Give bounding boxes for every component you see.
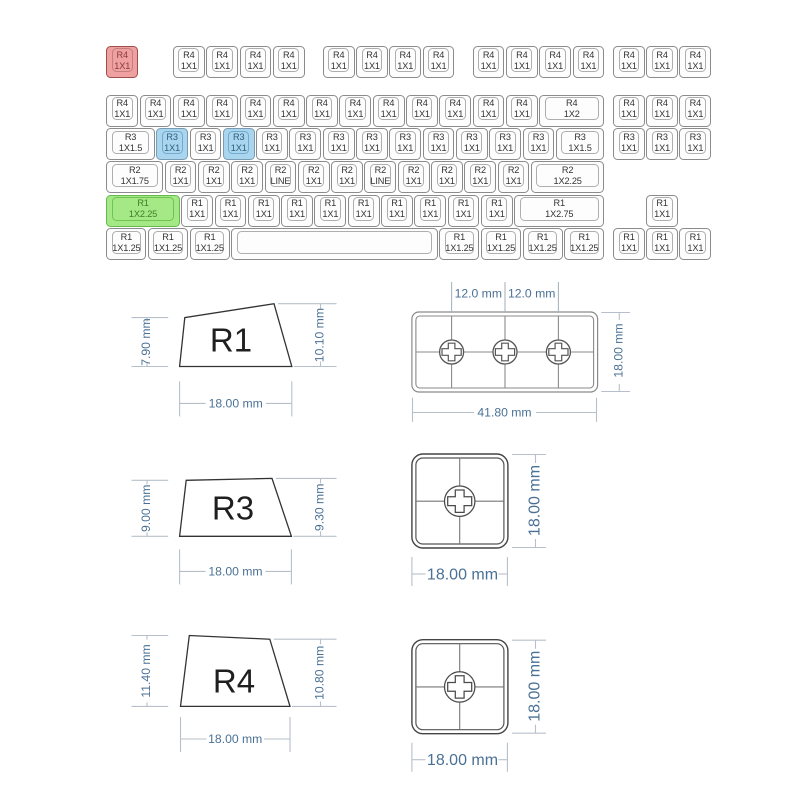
svg-text:18.00 mm: 18.00 mm [527, 651, 544, 722]
svg-text:10.80 mm: 10.80 mm [313, 646, 327, 700]
svg-text:18.00 mm: 18.00 mm [208, 565, 262, 579]
svg-text:9.30 mm: 9.30 mm [313, 484, 327, 531]
svg-text:R4: R4 [213, 663, 255, 700]
svg-text:18.00 mm: 18.00 mm [209, 397, 263, 411]
svg-text:18.00 mm: 18.00 mm [527, 465, 544, 536]
svg-text:41.80 mm: 41.80 mm [477, 406, 531, 420]
svg-text:10.10 mm: 10.10 mm [313, 308, 327, 362]
svg-text:12.0 mm: 12.0 mm [455, 287, 502, 301]
svg-text:18.00 mm: 18.00 mm [612, 323, 626, 377]
svg-text:7.90 mm: 7.90 mm [139, 318, 153, 365]
svg-text:9.00 mm: 9.00 mm [139, 485, 153, 532]
svg-text:12.0 mm: 12.0 mm [508, 287, 555, 301]
svg-text:18.00 mm: 18.00 mm [427, 567, 498, 584]
svg-text:11.40 mm: 11.40 mm [139, 644, 153, 697]
svg-text:R3: R3 [212, 490, 254, 527]
svg-text:R1: R1 [210, 322, 252, 359]
svg-text:18.00 mm: 18.00 mm [427, 752, 498, 769]
svg-text:18.00 mm: 18.00 mm [208, 732, 262, 746]
